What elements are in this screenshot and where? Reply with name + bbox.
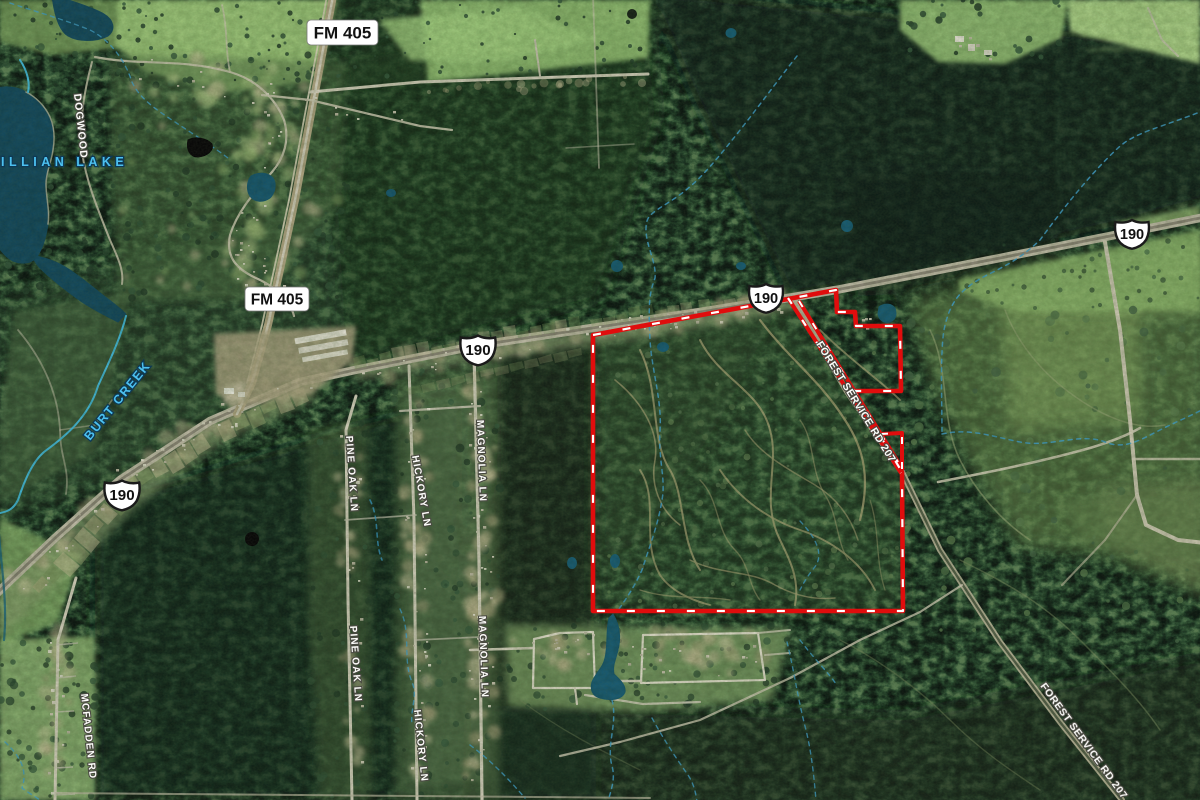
- svg-text:190: 190: [465, 342, 490, 359]
- svg-text:190: 190: [109, 487, 134, 504]
- svg-text:FM 405: FM 405: [251, 292, 304, 309]
- svg-text:190: 190: [1120, 227, 1144, 243]
- svg-text:190: 190: [754, 291, 778, 307]
- svg-text:FM 405: FM 405: [314, 24, 372, 43]
- svg-text:ILLIAN LAKE: ILLIAN LAKE: [1, 155, 128, 169]
